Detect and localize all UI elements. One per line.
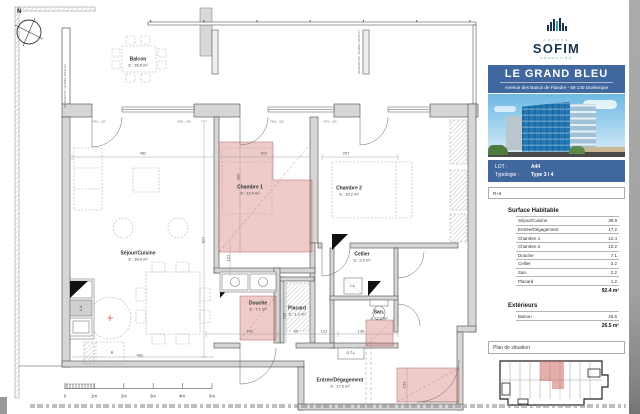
page-edge-strip xyxy=(629,0,640,414)
surface-row-value: 12.4 xyxy=(608,236,617,241)
exterior-row: Balcon 26.5 xyxy=(516,311,619,320)
exterior-section-title: Extérieurs xyxy=(508,303,627,309)
disclaimer-text-line xyxy=(30,404,626,408)
room-label-chambre2: Chambre 2 S : 10.2 m² xyxy=(336,185,362,196)
room-label-douche: Douche S : 7.1 m² xyxy=(249,300,267,311)
floor-level-box: R+6 xyxy=(488,187,625,199)
surface-row-value: 7.1 xyxy=(611,253,617,258)
logo-building-icon xyxy=(544,17,570,31)
dishwasher-label: L.V. xyxy=(79,305,83,311)
project-address: Avenue des Bancs de Flandre - 59 140 Dun… xyxy=(488,85,625,90)
surface-row-value: 39.9 xyxy=(608,218,617,223)
surface-row-label: Chambre 1 xyxy=(518,236,540,241)
sofim-logo: GROUPE SOFIM PROMOTION xyxy=(486,0,627,60)
surface-section-title: Surface Habitable xyxy=(508,208,627,214)
project-title: LE GRAND BLEU xyxy=(488,68,625,80)
surface-row-label: Placard xyxy=(518,279,533,284)
room-label-entree: Entrée/Dégagement S : 17.2 m² xyxy=(317,377,364,388)
bush-right xyxy=(569,146,585,154)
surface-row-label: Séjour/Cuisine xyxy=(518,218,547,223)
surface-row-value: 10.2 xyxy=(608,244,617,249)
surface-row: San. 2.2 xyxy=(516,268,619,277)
surface-row-label: Cellier xyxy=(518,261,531,266)
bush-left xyxy=(488,145,508,155)
exterior-table: Balcon 26.5 xyxy=(516,311,619,321)
washer-label: L.L. xyxy=(350,284,356,288)
info-sidebar: GROUPE SOFIM PROMOTION LE GRAND BLEU Ave… xyxy=(486,0,627,414)
room-label-cellier: Cellier S : 2.2 m² xyxy=(353,251,370,262)
lot-label: LOT : xyxy=(495,164,531,170)
road-strip xyxy=(488,152,625,157)
situation-plan-title: Plan de situation xyxy=(488,341,625,354)
surface-row: Séjour/Cuisine 39.9 xyxy=(516,216,619,225)
separator-text-left: SEPARATIF VERRE OPALIN xyxy=(64,64,68,107)
page-container: N SEPARATIF VERRE OPALIN SEPARATIF VERRE… xyxy=(0,0,640,414)
surface-row: Placard 1.2 xyxy=(516,276,619,285)
boundary-lines xyxy=(15,7,212,398)
exterior-row-label: Balcon xyxy=(518,314,532,319)
surface-row-label: Entrée/Dégagement xyxy=(518,227,558,232)
scale-bar xyxy=(65,383,212,389)
building-side-facade xyxy=(570,104,596,152)
logo-sub-text: PROMOTION xyxy=(486,56,627,60)
surface-total: 92.4 m² xyxy=(486,288,619,294)
balcony-structure xyxy=(62,21,476,104)
room-label-balcon: Balcon S : 26.5 m² xyxy=(128,56,148,67)
compass-north-label: N xyxy=(17,9,21,15)
windows xyxy=(122,107,430,112)
surface-row-value: 17.2 xyxy=(608,227,617,232)
surface-table: Séjour/Cuisine 39.9 Entrée/Dégagement 17… xyxy=(516,216,619,286)
typology-row: Typologie : Type 3 / 4 xyxy=(495,172,618,178)
room-label-placard: Placard S : 1.2 m² xyxy=(288,305,306,316)
exterior-total: 26.5 m² xyxy=(486,323,619,329)
lot-row: LOT : A44 xyxy=(495,164,618,170)
typology-value: Type 3 / 4 xyxy=(531,172,553,178)
fridge-label: R xyxy=(111,351,114,355)
surface-row: Cellier 2.2 xyxy=(516,259,619,268)
building-main-facade xyxy=(522,102,570,152)
room-label-san: San. S : 2.2 m² xyxy=(370,309,387,320)
lot-banner: LOT : A44 Typologie : Type 3 / 4 xyxy=(488,160,625,183)
surface-row-label: Douche xyxy=(518,253,534,258)
surface-row-value: 2.2 xyxy=(611,261,617,266)
gtl-label: G.T.L. xyxy=(346,351,355,355)
surface-row: Entrée/Dégagement 17.2 xyxy=(516,225,619,234)
surface-row-label: San. xyxy=(518,270,527,275)
page-corner-mark xyxy=(0,397,7,414)
surface-row-value: 2.2 xyxy=(611,270,617,275)
logo-name-text: SOFIM xyxy=(486,42,627,56)
room-label-sejour: Séjour/Cuisine S : 39.9 m² xyxy=(120,250,155,261)
separator-text-right: SEPARATIF VERRE OPALIN xyxy=(358,30,362,73)
surface-row-label: Chambre 2 xyxy=(518,244,540,249)
surface-row: Chambre 1 12.4 xyxy=(516,233,619,242)
lot-value: A44 xyxy=(531,164,540,170)
building-photo xyxy=(488,94,625,157)
surface-row: Chambre 2 10.2 xyxy=(516,242,619,251)
exterior-row-value: 26.5 xyxy=(608,314,617,319)
banner-divider xyxy=(500,82,613,83)
typology-label: Typologie : xyxy=(495,172,531,178)
project-banner: LE GRAND BLEU Avenue des Bancs de Flandr… xyxy=(488,65,625,93)
room-label-chambre1: Chambre 1 S : 12.4 m² xyxy=(237,184,263,195)
cloud-shape xyxy=(494,106,516,112)
surface-row-value: 1.2 xyxy=(611,279,617,284)
surface-row: Douche 7.1 xyxy=(516,251,619,260)
